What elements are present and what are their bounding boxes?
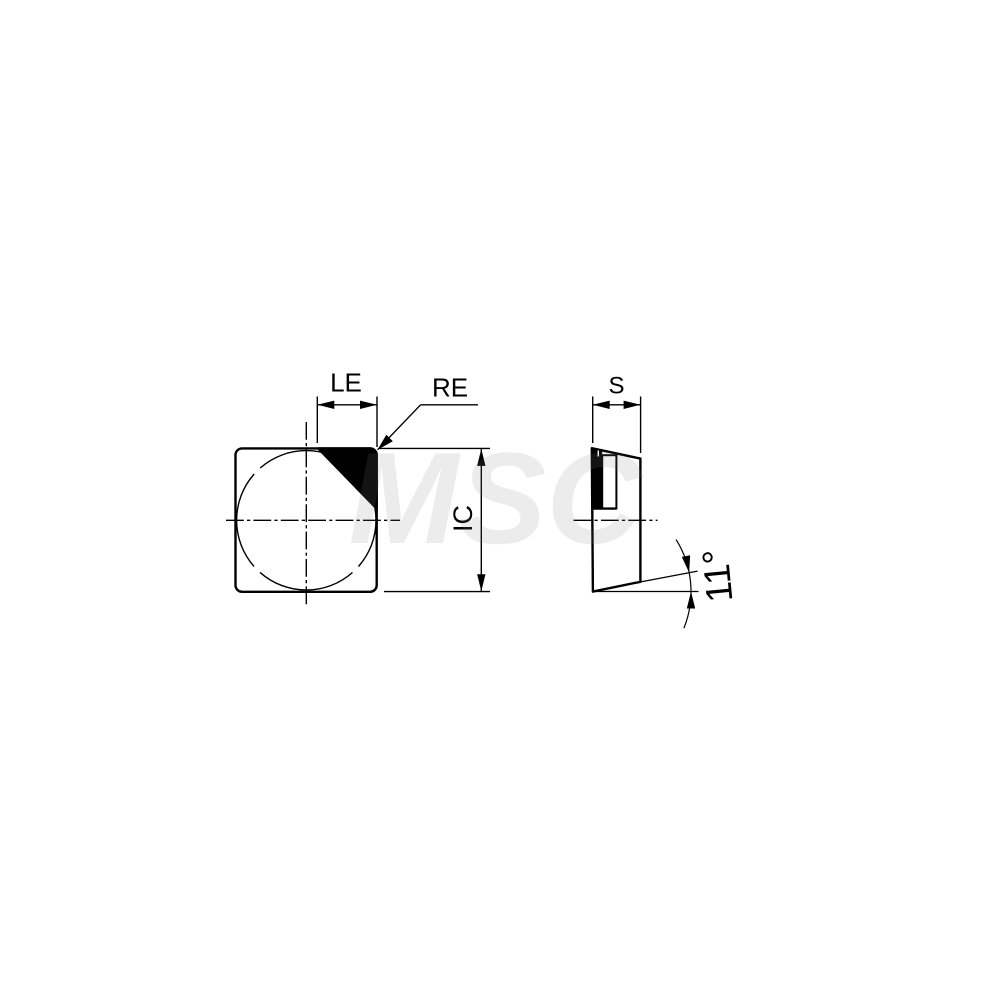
svg-text:S: S: [608, 373, 624, 400]
svg-text:LE: LE: [330, 368, 362, 398]
svg-text:MSC: MSC: [349, 425, 644, 571]
svg-text:11°: 11°: [695, 547, 741, 604]
svg-text:RE: RE: [432, 373, 468, 403]
